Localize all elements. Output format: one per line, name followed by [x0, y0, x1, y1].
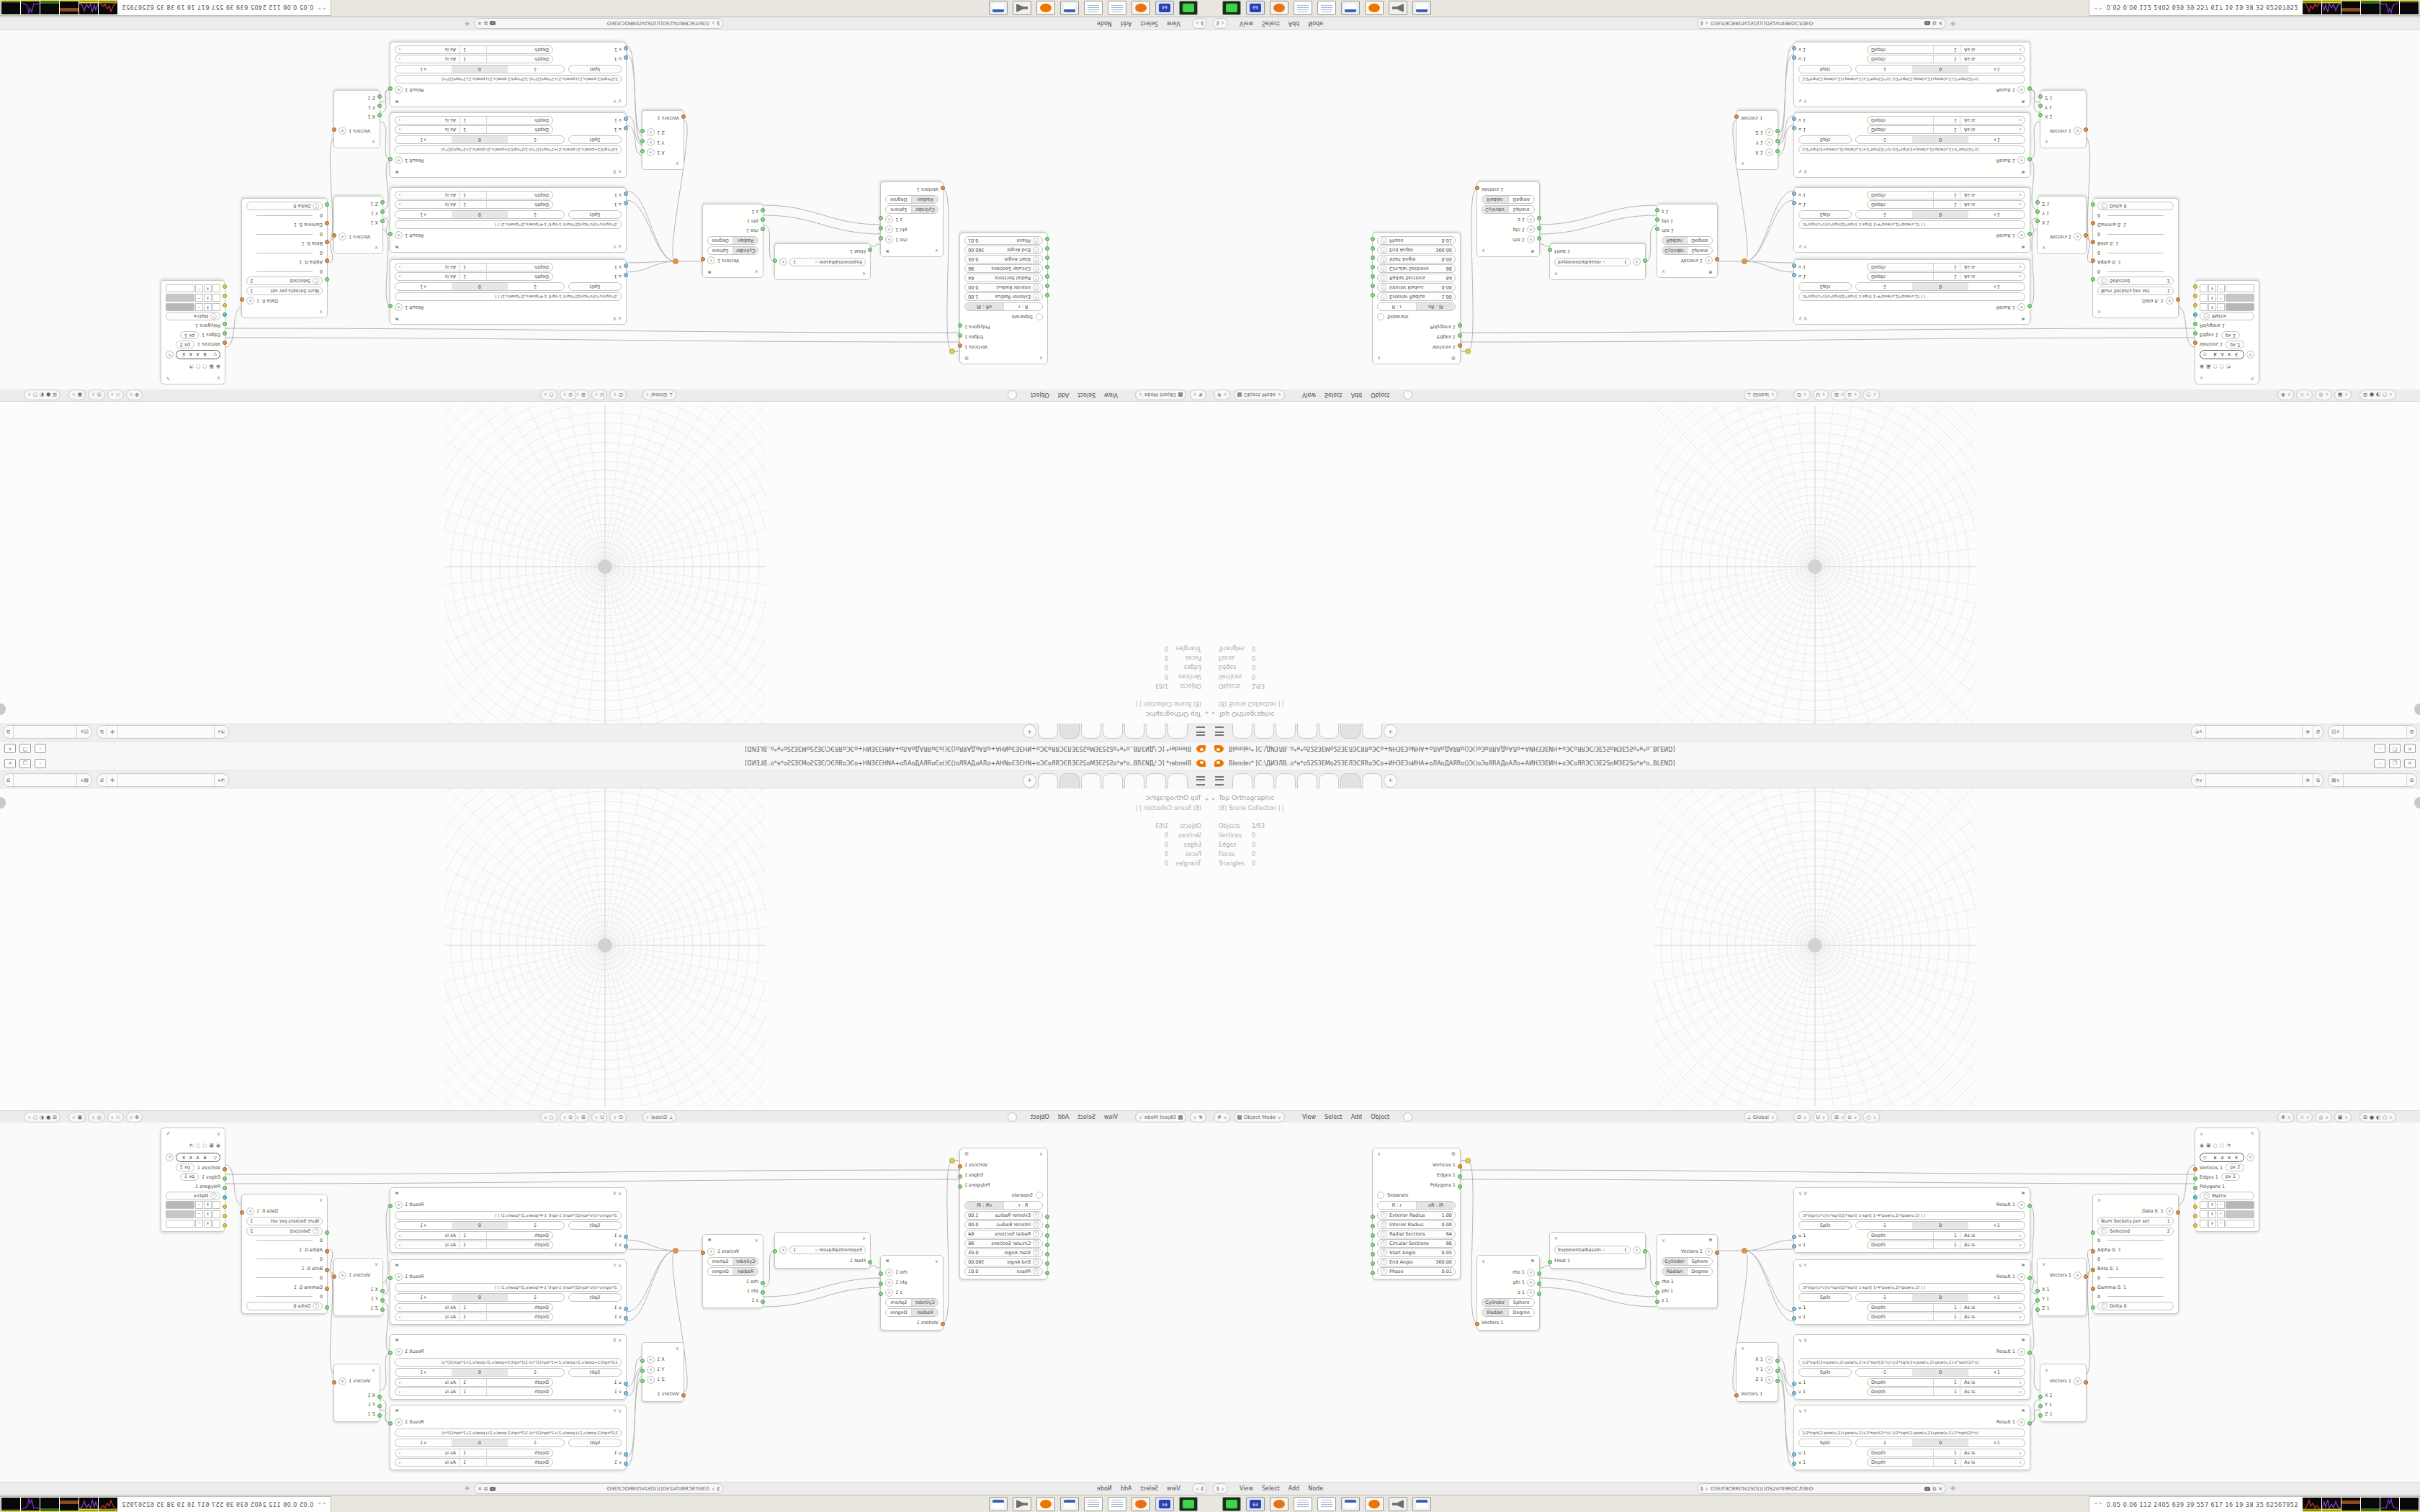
node-socket-blue[interactable]	[1792, 1316, 1796, 1320]
display-toggle-icon[interactable]: ◉	[216, 1143, 220, 1148]
node-socket-orange[interactable]	[681, 1393, 686, 1398]
node-socket-green[interactable]	[325, 1230, 329, 1235]
easing-node[interactable]: ∨ ExponentialEaseIn ∨1▾Float 1	[1549, 243, 1646, 280]
node-socket-green[interactable]	[1371, 1224, 1375, 1228]
collapse-icon[interactable]: ∨	[318, 1197, 323, 1203]
node-socket-green[interactable]	[879, 1282, 883, 1286]
node-socket-green[interactable]	[2038, 1413, 2043, 1418]
overlay-toggle-button[interactable]: ▣∨	[68, 1112, 86, 1122]
formula-node-x1[interactable]: ∨ X⚑Result 1▾.5*sign(u*v)/v*sqrt(2)*sqrt…	[390, 259, 627, 325]
restore-button[interactable]: ❐	[19, 744, 31, 753]
wrap-selector[interactable]: -10+1	[395, 65, 565, 73]
snap-icon-button[interactable]: U∨	[591, 1112, 608, 1122]
taskbar-icon-app-dark-green[interactable]	[1222, 1, 1241, 15]
node-socket-orange[interactable]	[332, 1274, 336, 1279]
scene-selector[interactable]: ◔∨ ✜ ⧉	[2191, 725, 2323, 739]
depth-field[interactable]: Depth1As is	[1867, 1313, 2025, 1321]
node-socket-green[interactable]	[1371, 1271, 1375, 1275]
collapse-icon[interactable]: ∨	[1377, 355, 1382, 361]
node-socket-green[interactable]	[640, 139, 645, 143]
vector-polar-output-node[interactable]: ∨ ⚑rho 1▾phi 1▾z 1▾CylinderSphereRadianD…	[1476, 181, 1540, 257]
unlink-icon[interactable]: ✕	[1938, 21, 1942, 27]
socket-menu-icon[interactable]: ▾	[2017, 1273, 2025, 1281]
socket-menu-icon[interactable]: ▾	[1527, 1269, 1535, 1277]
node-socket-green[interactable]	[640, 1369, 645, 1373]
depth-field[interactable]: Depth1As is	[1867, 192, 2025, 200]
display-toggle-icon[interactable]: ◔	[2226, 1143, 2231, 1148]
node-socket-green[interactable]	[1775, 149, 1780, 153]
node-socket-green[interactable]	[640, 129, 645, 133]
viewport-menu-object[interactable]: Object	[1031, 392, 1049, 398]
collapse-icon[interactable]: ∨	[373, 245, 378, 251]
taskbar-icon-app-dark-green[interactable]	[1179, 1, 1198, 15]
mode-toggle[interactable]: RadianDegree	[885, 1308, 938, 1317]
color-toggle[interactable]: ⌐	[2217, 1210, 2225, 1218]
editor-type-button[interactable]: §∨	[1213, 1483, 1228, 1494]
torus-node[interactable]: ∨ ⚙Vertices 1Edges 1Polygons 1SeparateR …	[1372, 1148, 1461, 1279]
node-socket-green[interactable]	[879, 1272, 883, 1276]
display-toggle-icon[interactable]: ◉	[216, 364, 220, 369]
taskbar-icon-window-app[interactable]	[1341, 1, 1360, 15]
node-socket-green[interactable]	[2027, 1421, 2032, 1426]
taskbar-icon-notepad[interactable]	[1108, 1, 1126, 15]
mode-toggle[interactable]: RadianDegree	[1482, 1308, 1535, 1317]
node-socket-orange[interactable]	[1458, 1164, 1462, 1169]
formula-node-y1[interactable]: ∨ Y⚑Result 1▾.5*sign(u*v)/u*sqrt(2)*sqrt…	[1793, 1259, 2030, 1325]
taskbar-icon-blender[interactable]	[1036, 1, 1055, 15]
node-socket-orange[interactable]	[2084, 233, 2088, 238]
snap-icon-button[interactable]: ∅∨	[609, 1112, 627, 1122]
split-button[interactable]: Split	[568, 135, 622, 144]
socket-menu-icon[interactable]: ▾	[2017, 1418, 2025, 1426]
taskbar-icon-blender[interactable]	[1036, 1497, 1055, 1511]
mode-toggle[interactable]: R : reR : iR	[1377, 302, 1456, 311]
collapse-icon[interactable]: ∨	[753, 269, 758, 274]
workspace-tab-4[interactable]	[1297, 724, 1317, 739]
taskbar-icon-window-app[interactable]	[1060, 1, 1079, 15]
scene-selector[interactable]: ◔∨ ✜ ⧉	[2191, 773, 2323, 787]
wrap-selector[interactable]: -10+1	[1855, 1439, 2025, 1447]
easing-dropdown[interactable]: ExponentialEaseIn ∨1	[1554, 1246, 1631, 1254]
node-socket-green[interactable]	[377, 1413, 382, 1418]
add-workspace-button[interactable]: +	[1023, 774, 1036, 788]
bake-button[interactable]: ▽B A K E	[2200, 1153, 2244, 1162]
color-toggle[interactable]: ⌐	[195, 284, 203, 292]
node-editor[interactable]: ∨ ⚙Vertices 1Edges 1Polygons 1SeparateR …	[1210, 1122, 2420, 1482]
mode-toggle[interactable]: RadianDegree	[1662, 236, 1713, 245]
number-field[interactable]: Num Sockets per set1	[2097, 287, 2174, 295]
node-socket-green[interactable]	[1045, 1233, 1049, 1238]
mode-toggle[interactable]: CylinderSphere	[707, 246, 758, 255]
node-socket-green[interactable]	[1458, 1184, 1462, 1189]
copy-icon[interactable]: ⧉	[4, 726, 13, 738]
unlink-icon[interactable]: ✕	[478, 21, 482, 27]
taskbar-icon-floppy-64[interactable]: 64	[1246, 1497, 1265, 1511]
fake-user-shield-icon[interactable]: ✓	[1924, 1487, 1930, 1491]
socket-menu-icon[interactable]: ▾	[1527, 1279, 1535, 1287]
bake-button[interactable]: ▽B A K E	[176, 351, 220, 360]
socket-menu-icon[interactable]: ▾	[1705, 257, 1713, 265]
color-toggle[interactable]: ▮	[204, 1201, 212, 1209]
wrap-selector[interactable]: -10+1	[395, 282, 565, 291]
workspace-tab-4[interactable]	[1297, 773, 1317, 788]
collapse-icon[interactable]: ∨	[1482, 1259, 1487, 1264]
node-socket-green[interactable]	[2193, 1186, 2197, 1190]
socket-menu-icon[interactable]: ▾	[2074, 127, 2081, 135]
toolbar-collapse-arrow[interactable]: ◂	[1211, 796, 1214, 802]
socket-menu-icon[interactable]: ▾	[885, 1269, 893, 1277]
collapse-icon[interactable]: ∨	[2045, 139, 2050, 145]
collapse-icon[interactable]: ∨	[2200, 1131, 2205, 1137]
workspace-tab-3[interactable]	[1124, 773, 1144, 788]
vector-out-node[interactable]: ∨ X 1▾Y 1▾Z 1▾Vectors 1	[642, 1342, 684, 1402]
color-swatch[interactable]	[166, 294, 194, 302]
node-socket-green[interactable]	[761, 1300, 765, 1304]
socket-menu-icon[interactable]: ▾	[2017, 1348, 2025, 1356]
node-tree-selector[interactable]: §∨ ОЗЕЛЭСЯRІП¤2SО()()ОS2¤ПІЯRОСЛЗЕО ✓ ⧉ …	[474, 1483, 723, 1494]
node-socket-green[interactable]	[958, 1184, 962, 1189]
socket-menu-icon[interactable]: ▾	[395, 157, 403, 165]
proportional-edit-button[interactable]: ⊙∨	[560, 1112, 576, 1122]
viewport-menu-view[interactable]: View	[1104, 392, 1118, 398]
mode-toggle[interactable]: R : reR : iR	[1377, 1201, 1456, 1210]
easing-node[interactable]: ∨ ExponentialEaseIn ∨1▾Float 1	[1549, 1232, 1646, 1269]
node-socket-yellow[interactable]	[223, 1205, 227, 1209]
color-toggle[interactable]	[212, 1201, 220, 1209]
number-field[interactable]: ↻Circular Sections86	[964, 265, 1043, 274]
snap-icon-button[interactable]: ∅∨	[609, 390, 627, 400]
node-socket-orange[interactable]	[2176, 297, 2180, 302]
node-socket-green[interactable]	[2035, 1289, 2040, 1293]
node-socket-blue[interactable]	[1792, 1307, 1796, 1311]
depth-field[interactable]: Depth1As is	[395, 1231, 553, 1240]
taskbar-icon-speaker[interactable]	[1389, 1497, 1407, 1511]
node-socket-green[interactable]	[1643, 258, 1647, 263]
node-socket-green[interactable]	[388, 157, 393, 161]
socket-menu-icon[interactable]: ▾	[395, 1273, 403, 1281]
copy-icon[interactable]: ⧉	[97, 774, 107, 786]
proportional-edit-button[interactable]: ○∨	[1863, 1112, 1880, 1122]
node-socket-orange[interactable]	[2084, 127, 2088, 132]
socket-menu-icon[interactable]: ▾	[395, 1201, 403, 1209]
toolbar-collapse-arrow[interactable]: ◂	[1206, 796, 1209, 802]
shading-mode-switch[interactable]: ⊞●◐○∨	[2359, 390, 2396, 400]
number-field[interactable]: ↻Interior Radius0.00	[1377, 284, 1456, 292]
proportional-edit-button[interactable]: ⊙∨	[1844, 390, 1860, 400]
node-socket-orange[interactable]	[701, 1251, 705, 1255]
active-tool-icon[interactable]	[1403, 1112, 1412, 1122]
pixel-size-field[interactable]: px 1	[2221, 1173, 2240, 1181]
number-field[interactable]: ↻Phase0.01	[964, 237, 1043, 246]
viewport-menu-view[interactable]: View	[1302, 1114, 1316, 1120]
viewport-menu-select[interactable]: Select	[1325, 392, 1343, 398]
overlay-toggle-button[interactable]: ◎∨	[88, 390, 105, 400]
node-socket-green[interactable]	[1458, 1174, 1462, 1179]
node-menu-node[interactable]: Node	[1097, 20, 1112, 27]
taskbar-icon-app-dark-green[interactable]	[1222, 1497, 1241, 1511]
color-toggle[interactable]: ⌐	[2217, 303, 2225, 311]
pin-icon[interactable]: ✜	[1950, 20, 1955, 27]
workspace-tab-6[interactable]	[1059, 724, 1080, 739]
node-socket-green[interactable]	[2027, 157, 2032, 161]
depth-field[interactable]: Depth1As is	[395, 201, 553, 210]
color-toggle[interactable]	[2200, 284, 2208, 292]
viewer-draw-node[interactable]: ∨ ✎◉▣○○◔▽B A K E↻Vertices 1px 2Edges 1px…	[2195, 1128, 2259, 1232]
taskbar-icon-notepad[interactable]	[1108, 1497, 1126, 1511]
vector-polar-output-node[interactable]: ∨ ⚑rho 1▾phi 1▾z 1▾CylinderSphereRadianD…	[880, 181, 944, 257]
collapse-icon[interactable]: ∨ Y	[613, 1408, 622, 1414]
collapse-icon[interactable]: ∨	[1741, 161, 1746, 166]
color-toggle[interactable]: ⌐	[195, 294, 203, 302]
number-field[interactable]: ↻Radial Sections64	[964, 1230, 1043, 1238]
workspace-tab-6[interactable]	[1340, 773, 1361, 788]
number-field[interactable]: ↻Selected2	[246, 1227, 323, 1236]
socket-menu-icon[interactable]: ▾	[885, 1289, 893, 1297]
easing-dropdown[interactable]: ExponentialEaseIn ∨1	[789, 1246, 866, 1254]
collapse-icon[interactable]: ∨	[753, 1238, 758, 1243]
mode-toggle[interactable]: RadianDegree	[1662, 1267, 1713, 1276]
tray-expand-icon[interactable]: ⌃⌃	[317, 1503, 326, 1508]
overlay-toggle-button[interactable]: ◎∨	[2315, 390, 2332, 400]
color-toggle[interactable]	[212, 1220, 220, 1228]
overlay-toggle-button[interactable]: ◎∨	[88, 1112, 105, 1122]
node-socket-orange[interactable]	[2091, 1249, 2095, 1254]
depth-field[interactable]: Depth1As is	[395, 117, 553, 125]
viewlayer-selector[interactable]: ▤∨ ⧉	[2328, 773, 2417, 787]
torus-node[interactable]: ∨ ⚙Vertices 1Edges 1Polygons 1SeparateR …	[1372, 233, 1461, 364]
depth-field[interactable]: Depth1As is	[1867, 1241, 2025, 1249]
node-socket-green[interactable]	[1655, 1300, 1659, 1304]
number-field[interactable]: ↻Selected2	[2097, 277, 2174, 286]
number-field[interactable]: ↻End Angle360.00	[964, 1258, 1043, 1266]
fake-user-shield-icon[interactable]: ✓	[490, 22, 496, 26]
taskbar-icon-notepad[interactable]	[1294, 1497, 1312, 1511]
display-toggle-icon[interactable]: ◉	[2200, 364, 2204, 369]
socket-menu-icon[interactable]: ▾	[1527, 226, 1535, 234]
socket-menu-icon[interactable]: ▾	[1765, 1356, 1773, 1364]
depth-field[interactable]: Depth1As is	[1867, 1458, 2025, 1467]
node-menu-select[interactable]: Select	[1140, 1485, 1158, 1492]
fake-user-shield-icon[interactable]: ✓	[490, 1487, 496, 1491]
wrap-selector[interactable]: -10+1	[1855, 1293, 2025, 1302]
display-toggle-icon[interactable]: ○	[196, 1143, 200, 1148]
color-swatch[interactable]	[166, 1210, 194, 1218]
node-socket-green[interactable]	[388, 1276, 393, 1280]
socket-menu-icon[interactable]: ▾	[2017, 232, 2025, 240]
node-tree-selector[interactable]: §∨ ОЗЕЛЭСЯRІП¤2SО()()ОS2¤ПІЯRОСЛЗЕО ✓ ⧉ …	[474, 18, 723, 29]
socket-menu-icon[interactable]: ▾	[246, 1207, 254, 1215]
tray-expand-icon[interactable]: ⌃⌃	[2093, 5, 2102, 10]
vector-in-node[interactable]: ∨ Vectors 1▾X 1Y 1Z 1	[333, 1258, 383, 1316]
node-socket-green[interactable]	[1371, 1252, 1375, 1256]
socket-menu-icon[interactable]: ▾	[2017, 86, 2025, 94]
workspace-tab-5[interactable]	[1081, 724, 1101, 739]
color-toggle[interactable]: ▮	[204, 284, 212, 292]
node-socket-orange[interactable]	[240, 1210, 244, 1215]
color-swatch[interactable]	[2226, 303, 2254, 311]
node-socket-orange[interactable]	[2084, 1274, 2088, 1279]
node-socket-cyan[interactable]	[2193, 1195, 2197, 1200]
node-socket-green[interactable]	[388, 1204, 393, 1208]
color-toggle[interactable]	[212, 294, 220, 302]
easing-dropdown[interactable]: ExponentialEaseIn ∨1	[1554, 258, 1631, 266]
wrap-selector[interactable]: -10+1	[1855, 1221, 2025, 1230]
split-button[interactable]: Split	[1798, 1439, 1852, 1447]
pixel-size-field[interactable]: px 1	[180, 331, 199, 339]
collapse-icon[interactable]: ∨	[1662, 269, 1667, 274]
socket-menu-icon[interactable]: ▾	[885, 216, 893, 224]
formula-node-y1[interactable]: ∨ Y⚑Result 1▾.5*sign(u*v)/u*sqrt(2)*sqrt…	[390, 1259, 627, 1325]
close-button[interactable]: ✕	[4, 744, 16, 753]
bake-button[interactable]: ▽B A K E	[2200, 351, 2244, 360]
transform-orientation-dropdown[interactable]: ⟂Global∨	[1744, 390, 1778, 400]
color-toggle[interactable]: ▮	[2208, 284, 2216, 292]
node-socket-green[interactable]	[761, 1290, 765, 1295]
formula-field[interactable]: 1/2*sqrt(2-pow(u,2)+pow(v,2)+2*sqrt(2)*v…	[1798, 76, 2025, 84]
display-toggle-icon[interactable]: ▣	[2206, 364, 2211, 369]
number-field[interactable]: ↻Interior Radius0.00	[1377, 1220, 1456, 1229]
workspace-tab-7[interactable]	[1038, 724, 1058, 739]
formula-node-y2[interactable]: ∨ Y⚑Result 1▾1/2*sqrt(2-pow(u,2)+pow(v,2…	[1793, 1405, 2030, 1470]
transform-orientation-dropdown[interactable]: ⟂Global∨	[1744, 1112, 1778, 1122]
node-socket-yellow[interactable]	[2193, 1223, 2197, 1228]
number-field[interactable]: ↻End Angle360.00	[1377, 1258, 1456, 1266]
formula-field[interactable]: .5*sign(u*v)/v*sqrt(2)*sqrt( 1-sqrt( 1-4…	[395, 293, 622, 302]
workspace-tab-2[interactable]	[1254, 773, 1274, 788]
socket-menu-icon[interactable]: ▾	[1633, 258, 1641, 266]
node-socket-green[interactable]	[223, 1186, 227, 1190]
node-menu-add[interactable]: Add	[1289, 20, 1300, 27]
socket-menu-icon[interactable]: ▾	[339, 127, 346, 135]
number-field[interactable]: ↻Circular Sections86	[1377, 1239, 1456, 1248]
mode-toggle[interactable]: CylinderSphere	[885, 205, 938, 214]
add-workspace-button[interactable]: +	[1384, 724, 1397, 738]
depth-field[interactable]: Depth1As is	[1867, 1449, 2025, 1457]
node-socket-green[interactable]	[1537, 226, 1541, 230]
display-toggle-icon[interactable]: ▣	[209, 364, 214, 369]
window-titlebar[interactable]: Blender* [C:\ДИЗЛВ..о*е*оS2SЗЕМо2SЗЕЛЭСЯ…	[1210, 756, 2420, 771]
formula-field[interactable]: .5*sign(u*v)/u*sqrt(2)*sqrt( 1-sqrt( 1-4…	[1798, 1283, 2025, 1292]
node-socket-green[interactable]	[388, 1351, 393, 1355]
collapse-icon[interactable]: ∨ X	[1798, 1191, 1807, 1197]
overlay-toggle-button[interactable]: ⤬∨	[107, 1112, 124, 1122]
formula-field[interactable]: .5*sign(u*v)/u*sqrt(2)*sqrt( 1-sqrt( 1-4…	[395, 1283, 622, 1292]
node-socket-green[interactable]	[1655, 1281, 1659, 1285]
node-socket-green[interactable]	[2027, 304, 2032, 308]
bake-button[interactable]: ▽B A K E	[176, 1153, 220, 1162]
depth-field[interactable]: Depth1As is	[1867, 1387, 2025, 1396]
viewport-3d[interactable]: Top Orthographic (8) Scene Collection | …	[0, 788, 1210, 1110]
color-toggle[interactable]: ⌐	[195, 1201, 203, 1209]
workspace-tab-2[interactable]	[1254, 724, 1274, 739]
formula-node-x2[interactable]: ∨ X⚑Result 1▾1/2*sqrt(2+pow(u,2)-pow(v,2…	[1793, 112, 2030, 178]
taskbar-icon-window-app[interactable]	[989, 1497, 1008, 1511]
node-socket-green[interactable]	[1775, 129, 1780, 133]
mode-toggle[interactable]: RadianDegree	[1482, 195, 1535, 204]
copy-icon[interactable]: ⧉	[1932, 21, 1936, 27]
node-socket-green[interactable]	[1458, 323, 1462, 328]
wrap-selector[interactable]: -10+1	[395, 135, 565, 144]
scene-name-field[interactable]	[117, 726, 214, 738]
proportional-edit-button[interactable]: ○∨	[540, 1112, 557, 1122]
node-socket-blue[interactable]	[624, 1452, 628, 1457]
split-button[interactable]: Split	[568, 1439, 622, 1447]
taskbar-icon-notepad[interactable]	[1294, 1, 1312, 15]
mode-toggle[interactable]: RadianDegree	[707, 1267, 758, 1276]
overlay-toggle-button[interactable]: ⤬∨	[2296, 390, 2313, 400]
workspace-tab-1[interactable]	[1232, 773, 1252, 788]
node-socket-blue[interactable]	[1792, 1452, 1796, 1457]
workspace-tab-1[interactable]	[1168, 773, 1188, 788]
viewport-menu-add[interactable]: Add	[1058, 392, 1070, 398]
node-socket-blue[interactable]	[1792, 1382, 1796, 1386]
number-field[interactable]: ↻Start Angle0.05	[1377, 1248, 1456, 1257]
vector-polar-input-node[interactable]: ∨ ⚑Vectors 1▾CylinderSphereRadianDegreer…	[1657, 1234, 1718, 1308]
node-socket-blue[interactable]	[1792, 1391, 1796, 1395]
node-socket-green[interactable]	[1537, 216, 1541, 220]
overlay-toggle-button[interactable]: ◎∨	[2315, 1112, 2332, 1122]
mode-toggle[interactable]: CylinderSphere	[1482, 1298, 1535, 1307]
display-toggle-icon[interactable]: ▣	[2206, 1143, 2211, 1148]
workspace-tab-1[interactable]	[1232, 724, 1252, 739]
number-field[interactable]: Num Sockets per set1	[246, 1217, 323, 1225]
node-socket-green[interactable]	[1371, 1233, 1375, 1238]
collapse-icon[interactable]: ∨	[1377, 1151, 1382, 1157]
formula-node-y1[interactable]: ∨ Y⚑Result 1▾.5*sign(u*v)/u*sqrt(2)*sqrt…	[390, 187, 627, 253]
node-socket-green[interactable]	[2193, 1176, 2197, 1181]
taskbar-icon-blender[interactable]	[1365, 1497, 1384, 1511]
overlay-toggle-button[interactable]: ▣∨	[2334, 1112, 2352, 1122]
number-field[interactable]: ↻Radial Sections64	[1377, 274, 1456, 283]
display-toggle-icon[interactable]: ◔	[2226, 364, 2231, 369]
node-socket-orange[interactable]	[240, 297, 244, 302]
socket-menu-icon[interactable]: ▾	[1527, 236, 1535, 244]
formula-node-x1[interactable]: ∨ X⚑Result 1▾.5*sign(u*v)/v*sqrt(2)*sqrt…	[1793, 1187, 2030, 1253]
vector-in-node[interactable]: ∨ Vectors 1▾X 1Y 1Z 1	[2040, 1364, 2087, 1422]
wrap-selector[interactable]: -10+1	[395, 1439, 565, 1447]
close-button[interactable]: ✕	[4, 759, 16, 768]
collapse-icon[interactable]: ∨ Y	[1798, 1263, 1807, 1269]
socket-menu-icon[interactable]: ▾	[246, 297, 254, 305]
viewlayer-name-field[interactable]	[2344, 774, 2407, 786]
node-socket-green[interactable]	[2091, 1305, 2095, 1310]
editor-type-button[interactable]: §∨	[1192, 18, 1207, 29]
viewlayer-name-field[interactable]	[13, 726, 76, 738]
taskbar-icon-firefox[interactable]	[1270, 1, 1289, 15]
split-button[interactable]: Split	[568, 65, 622, 73]
mode-toggle[interactable]: RadianDegree	[885, 195, 938, 204]
viewlayer-selector[interactable]: ▤∨ ⧉	[3, 773, 92, 787]
collapse-icon[interactable]: ∨ X	[613, 1191, 622, 1197]
node-socket-green[interactable]	[773, 258, 777, 263]
socket-menu-icon[interactable]: ▾	[1765, 149, 1773, 157]
socket-menu-icon[interactable]: ▾	[647, 129, 655, 137]
split-button[interactable]: Split	[568, 282, 622, 291]
socket-menu-icon[interactable]: ▾	[339, 1377, 346, 1385]
node-socket-green[interactable]	[868, 1260, 872, 1264]
color-toggle[interactable]	[212, 303, 220, 311]
node-socket-orange[interactable]	[325, 1268, 329, 1272]
node-socket-green[interactable]	[388, 1421, 393, 1426]
number-field[interactable]: ↻Interior Radius0.00	[964, 1220, 1043, 1229]
copy-icon[interactable]: ⧉	[2313, 774, 2323, 786]
node-socket-green[interactable]	[2035, 1308, 2040, 1312]
collapse-icon[interactable]: ∨	[933, 1259, 938, 1264]
display-toggle-icon[interactable]: ◔	[189, 1143, 194, 1148]
depth-field[interactable]: Depth1As is	[1867, 264, 2025, 272]
mode-dropdown[interactable]: Object Mode∨	[1135, 1112, 1186, 1122]
node-socket-green[interactable]	[958, 1174, 962, 1179]
